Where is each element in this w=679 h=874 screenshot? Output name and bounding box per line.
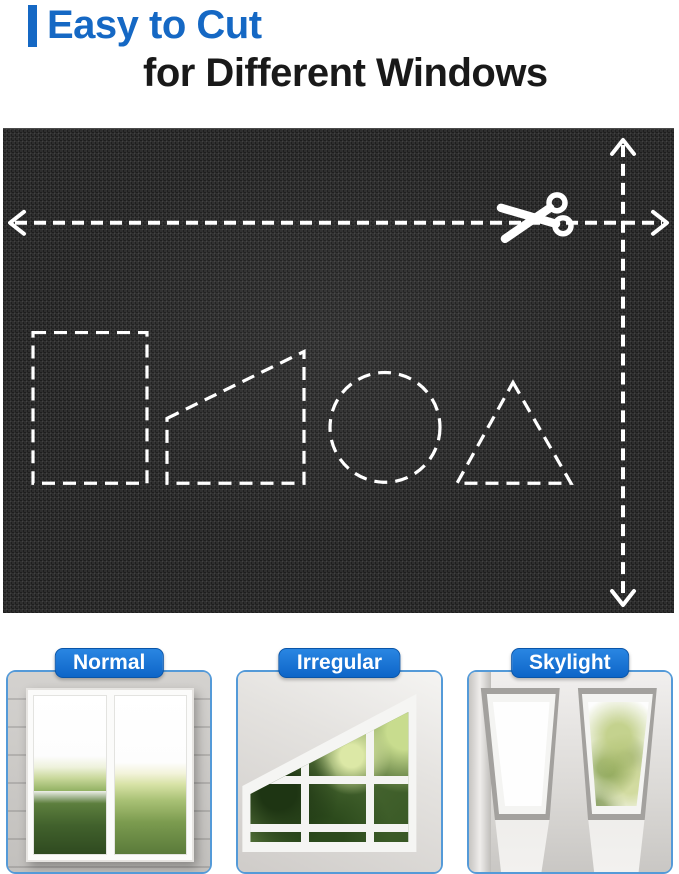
photo-normal-window — [8, 672, 210, 872]
vertical-double-arrow-icon — [612, 140, 634, 605]
title-line-2: for Different Windows — [143, 50, 548, 96]
window-type-card-skylight: Skylight — [467, 670, 673, 874]
window-type-card-normal: Normal — [6, 670, 212, 874]
cut-shape-triangle — [457, 382, 571, 483]
cut-shape-trapezoid — [167, 352, 304, 484]
title-line-1: Easy to Cut — [47, 2, 262, 48]
cut-guide-overlay — [3, 129, 674, 613]
normal-window-pane-left — [33, 695, 106, 855]
blackout-fabric-panel — [3, 128, 674, 613]
photo-skylight-window — [469, 672, 671, 872]
title-accent-bar — [28, 5, 37, 47]
window-type-cards: Normal Irregular Skylight — [0, 647, 679, 874]
photo-irregular-window — [238, 672, 440, 872]
window-type-badge-normal: Normal — [55, 648, 163, 678]
product-infographic: Easy to Cut for Different Windows — [0, 0, 679, 874]
normal-window-pane-right — [114, 695, 187, 855]
cut-shape-circle — [330, 372, 440, 482]
normal-window-frame — [26, 688, 194, 862]
scissors-icon — [501, 195, 571, 239]
window-type-card-irregular: Irregular — [236, 670, 442, 874]
window-type-badge-skylight: Skylight — [511, 648, 629, 678]
cut-shape-rectangle — [33, 333, 147, 484]
header: Easy to Cut for Different Windows — [0, 0, 679, 128]
window-type-badge-irregular: Irregular — [279, 648, 400, 678]
